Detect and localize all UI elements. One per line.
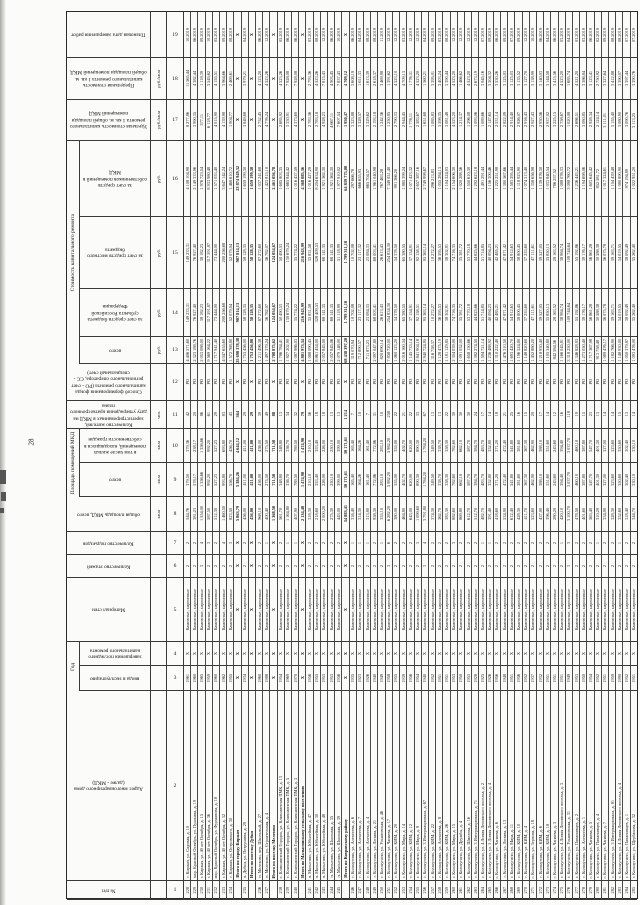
cell-value: 1 037 241,68 [257, 167, 262, 190]
table-cell: X [299, 100, 306, 140]
cell-value: 2 749 998,67 [422, 167, 427, 190]
table-cell: 3 386,84 [580, 58, 587, 99]
cell-value: X [213, 652, 218, 655]
table-cell: 4 523,20 [465, 58, 472, 99]
cell-value: X [343, 652, 348, 655]
table-cell: 1 717 941,40 [213, 337, 220, 363]
cell-value: 577,11 [199, 114, 204, 126]
cell-value: 3 323,88 [350, 112, 355, 127]
cell-value: 993,80 [221, 474, 226, 486]
table-cell: 1 214,37 [458, 100, 465, 140]
table-cell: 2 [443, 555, 450, 577]
cell-value: X [271, 676, 276, 679]
cell-value: Каменные, кирпичные [617, 589, 622, 630]
cell-value: 4 801 973,34 [300, 339, 305, 362]
table-cell: 216 943,99 [299, 289, 306, 336]
table-cell: 87 272,60 [256, 289, 263, 336]
cell-value: 1940 [372, 674, 377, 683]
table-cell: 283,10 [378, 429, 385, 462]
cell-value: 4 523,20 [451, 71, 456, 86]
cell-value: 54 912,63 [509, 304, 514, 321]
cell-value: 2 [480, 565, 485, 567]
table-cell: Каменные, кирпичные [335, 578, 342, 641]
table-cell: 4 [220, 532, 227, 554]
cell-value: 323,60 [610, 440, 615, 452]
cell-value: 254 [408, 887, 413, 893]
table-cell: 2 304 039,00 [451, 337, 458, 363]
table-cell: 275,50 [263, 429, 270, 462]
table-cell: 353,40 [314, 429, 321, 462]
table-cell: 547,70 [587, 463, 594, 496]
table-cell: 3 395,01 [429, 58, 436, 99]
table-cell: 2 944,45 [400, 100, 407, 140]
cell-value: 3 090,76 [624, 112, 629, 127]
cell-value: 327,00 [602, 474, 607, 486]
cell-value: г. Кольчугино, ул. Алексеева, д. 8 [437, 817, 442, 878]
cell-value: 1 368,50 [271, 506, 276, 521]
cell-value: 1 071 423,32 [408, 167, 413, 190]
table-cell: РО [386, 364, 393, 400]
table-cell: 1961 [184, 666, 191, 690]
cell-value: 04.2019 [242, 28, 247, 42]
table-cell: 1934 [242, 666, 249, 690]
cell-value: 1 799 311,10 [343, 241, 348, 263]
table-cell: 58 128,35 [249, 289, 256, 336]
table-cell: 86 [198, 401, 205, 428]
table-cell: Каменные, кирпичные [494, 578, 501, 641]
cell-value: г. Кольчугино, ул. Чапаева, д. 5 [588, 822, 593, 878]
cell-value: 2 [401, 542, 406, 544]
band-group-label: Год [67, 642, 80, 691]
cell-value: РО [566, 379, 571, 385]
table-cell: 297 666,78 [350, 141, 357, 216]
cell-value: 2 304 039,00 [451, 339, 456, 362]
cell-value: г. Кольчугино, ул. Чапаева, д. 6 [494, 822, 499, 878]
cell-value: 662,10 [458, 440, 463, 452]
cell-value: 1951 [631, 674, 636, 683]
table-cell: 118 [566, 401, 573, 428]
table-cell: 1 236 488,92 [487, 337, 494, 363]
cell-value: 39 163,71 [610, 244, 615, 261]
cell-value: 2 [581, 542, 586, 544]
table-cell: 907 814,13 [234, 289, 241, 336]
cell-value: 275,50 [264, 440, 269, 452]
cell-value: 2 [523, 542, 528, 544]
cell-value: РО [444, 379, 449, 385]
band-group-label: Площадь помещений МКД [67, 429, 80, 497]
table-cell: 767 463,28 [378, 141, 385, 216]
cell-value: 4 709,13 [401, 71, 406, 86]
cell-value: РО [437, 379, 442, 385]
table-cell: 218,60 [314, 497, 321, 531]
table-cell: 1 080 890,90 [616, 141, 623, 216]
cell-value: 08.2019 [228, 28, 233, 42]
cell-value: 662,10 [458, 474, 463, 486]
table-cell: 35 262,40 [631, 289, 637, 336]
table-cell: 38 092,49 [623, 217, 630, 288]
cell-value: 2 016 160,34 [401, 339, 406, 362]
table-cell: 3 125,03 [501, 58, 508, 99]
cell-value: X [343, 33, 348, 36]
band-number: 10 [172, 443, 178, 449]
table-cell: 2 686,51 [573, 100, 580, 140]
table-cell: РО [595, 364, 602, 400]
table-cell: 14 [487, 401, 494, 428]
table-cell: 55 192,86 [573, 289, 580, 336]
cell-value: 200 256,68 [221, 243, 226, 262]
cell-value: 25 690 378,38 [235, 338, 240, 363]
cell-value: X [602, 652, 607, 655]
cell-value: 2 000,20 [321, 506, 326, 521]
table-cell: 08.2019 [227, 12, 234, 57]
table-cell: 1 950,47 [342, 100, 349, 140]
table-cell: 1 658 150,66 [465, 337, 472, 363]
table-cell: X [306, 642, 313, 665]
table-cell: Каменные, кирпичные [537, 578, 544, 641]
cell-value: 2 [192, 542, 197, 544]
cell-value: 5 982,20 [386, 438, 391, 453]
table-cell: РО [494, 364, 501, 400]
table-cell: 1 356,66 [198, 463, 205, 496]
band-unit: руб. [156, 346, 161, 354]
table-cell: 04.2019 [357, 12, 364, 57]
cell-value: 310,20 [595, 508, 600, 520]
table-cell: Итого по Малыгинскому сельскому поселени… [299, 691, 306, 880]
table-cell: X [631, 642, 637, 665]
table-cell: 246 [350, 881, 357, 899]
cell-value: 43 [228, 412, 233, 416]
table-cell: 279 [587, 881, 594, 899]
band-col-17: Удельная стоимость капитального ремонта … [67, 100, 637, 141]
table-cell: 109 744,64 [566, 289, 573, 336]
table-cell: с. Клязьминский Городок, ул. Клязьминска… [285, 691, 292, 880]
table-cell: 2 841 904,18 [415, 337, 422, 363]
table-cell: 349,50 [429, 463, 436, 496]
table-cell: 38 800,45 [515, 217, 522, 288]
cell-value: 232 [213, 887, 218, 893]
cell-value: 06.2019 [192, 28, 197, 42]
table-cell: 234 [227, 881, 234, 899]
table-cell: 49 [263, 401, 270, 428]
table-cell: 42 485,21 [494, 289, 501, 336]
table-cell: 06.2019 [191, 12, 198, 57]
cell-value: 364 [235, 411, 240, 417]
cell-value: 367,30 [523, 440, 528, 452]
cell-value: г. Кольчугино, ул. КИМ, д. 10 [516, 824, 521, 878]
cell-value: 30 [458, 412, 463, 416]
cell-value: г. Кольчугино, ул. Мира, д. 9 [415, 826, 420, 878]
table-cell: РО [393, 364, 400, 400]
table-cell: 1958 [386, 666, 393, 690]
cell-value: Каменные, кирпичные [444, 589, 449, 630]
table-cell: 1 460,50 [220, 497, 227, 531]
table-cell: 2 [602, 532, 609, 554]
cell-value: 1923 [357, 674, 362, 683]
band-label: Удельная стоимость капитального ремонта … [68, 110, 149, 129]
cell-value: 1 087 986,03 [293, 339, 298, 362]
cell-value: РО [372, 379, 377, 385]
cell-value: 29 [242, 412, 247, 416]
cell-value: г. Кольчугино, ул. Мира, д. 11 [509, 824, 514, 878]
cell-value: 47 871,42 [502, 244, 507, 261]
cell-value: 612,70 [466, 508, 471, 520]
table-cell: 55 192,86 [573, 217, 580, 288]
cell-value: 3 225,15 [552, 112, 557, 127]
cell-value: 1 182 766,90 [610, 339, 615, 362]
cell-value: 1950 [581, 674, 586, 683]
cell-value: 1939 [401, 674, 406, 683]
table-cell: 7 928,08 [292, 58, 299, 99]
table-cell: 974 194,89 [623, 141, 630, 216]
table-cell: X [278, 642, 285, 665]
table-cell: X [256, 642, 263, 665]
table-cell: Каменные, кирпичные [422, 578, 429, 641]
cell-value: 1 885 399,24 [401, 167, 406, 190]
table-cell: 34 378,50 [393, 217, 400, 288]
group-label-text: Площадь помещений МКД [70, 432, 76, 494]
cell-value: 2 [631, 542, 636, 544]
table-cell: Каменные, кирпичные [602, 578, 609, 641]
cell-value: 12.2019 [458, 28, 463, 42]
table-cell: 352,60 [616, 497, 623, 531]
cell-value: 2 [581, 565, 586, 567]
table-cell: X [184, 642, 191, 665]
cell-value: РО [221, 379, 226, 385]
cell-value: 13 [278, 412, 283, 416]
cell-value: 4 523,26 [264, 71, 269, 86]
cell-value: с. Клязьминский Городок, ул. Клязьминска… [278, 776, 283, 878]
table-cell: 1 651,68 [422, 100, 429, 140]
cell-value: Каменные, кирпичные [602, 589, 607, 630]
table-cell: 384,70 [472, 429, 479, 462]
band-group-label: Стоимость капитального ремонта [67, 141, 80, 364]
table-cell: 2 927,43 [530, 100, 537, 140]
table-cell: 272 [537, 881, 544, 899]
cell-value: 1 022 951,20 [631, 167, 636, 190]
cell-value: 2 [552, 565, 557, 567]
table-cell: 2 016 160,34 [400, 337, 407, 363]
cell-value: РО [293, 379, 298, 385]
table-cell: РО [335, 364, 342, 400]
band-col-2: Адрес многоквартирного дома (далее - МКД… [67, 691, 637, 881]
table-cell: 351,60 [544, 429, 551, 462]
cell-value: 1958 [386, 674, 391, 683]
cell-value: 587,70 [466, 474, 471, 486]
table-cell: 68 438 397,20 [342, 337, 349, 363]
table-cell: 3 [227, 532, 234, 554]
cell-value: 1 603 645,42 [588, 167, 593, 190]
cell-value: г. Кольчугино, ул. Ульяновская, д. 46 [379, 811, 384, 878]
table-cell: 1 961 040,98 [371, 141, 378, 216]
table-cell: Каменные, кирпичные [378, 578, 385, 641]
cell-value: 992,20 [206, 474, 211, 486]
table-cell: 3 125,03 [508, 58, 515, 99]
table-cell: 12.2019 [393, 12, 400, 57]
table-cell: 06.2019 [285, 12, 292, 57]
table-cell: 348,80 [278, 429, 285, 462]
table-cell: 1 118 923,90 [515, 141, 522, 216]
cell-value: X [343, 541, 348, 544]
table-cell: Каменные, кирпичные [314, 578, 321, 641]
cell-value: г. Кольчугино, ул. КИМ, д. 6 [538, 826, 543, 878]
band-col-6: Количество этажей62232222X2X22X222X22222… [67, 555, 637, 578]
cell-value: 254 834,30 [386, 243, 391, 262]
cell-value: 991 366,20 [393, 169, 398, 188]
cell-value: 388,10 [538, 440, 543, 452]
table-cell: 2 793,36 [306, 58, 313, 99]
band-col-9: всегокв.м9379,50578,171 356,66992,20527,… [67, 463, 637, 497]
cell-value: РО [264, 379, 269, 385]
cell-value: 3 390,44 [444, 71, 449, 86]
cell-value: 30 171,61 [343, 471, 348, 488]
cell-value: 68 003,41 [372, 244, 377, 261]
cell-value: 31 [372, 412, 377, 416]
cell-value: 1 685,74 [566, 71, 571, 86]
table-cell: РО [292, 364, 299, 400]
table-cell: РО [458, 364, 465, 400]
cell-value: X [249, 380, 254, 383]
cell-value: 587,70 [466, 440, 471, 452]
table-cell: 3 390,44 [443, 58, 450, 99]
table-cell: 239 [285, 881, 292, 899]
cell-value: 1988 [264, 674, 269, 683]
table-cell: 2 193,18 [371, 100, 378, 140]
table-cell: 1 356,66 [198, 429, 205, 462]
cell-value: 34 883,41 [343, 505, 348, 522]
table-cell: Каменные, кирпичные [595, 578, 602, 641]
cell-value: 8 277,86 [185, 112, 190, 127]
table-cell: 2 [616, 555, 623, 577]
table-cell: 394,40 [559, 463, 566, 496]
cell-value: 50 490,53 [278, 244, 283, 261]
table-cell: 2 [443, 532, 450, 554]
table-cell: 1 554,00 [198, 497, 205, 531]
table-cell: 381,60 [515, 429, 522, 462]
cell-value: 1 089,66 [480, 112, 485, 127]
table-cell: 38 302,91 [443, 289, 450, 336]
cell-value: X [365, 652, 370, 655]
cell-value: 2 927,43 [530, 112, 535, 127]
band-number: 14 [172, 310, 178, 316]
cell-value: 36 075,78 [602, 304, 607, 321]
table-cell: 29 [213, 401, 220, 428]
cell-value: 30 171,61 [343, 437, 348, 454]
group-label-text: Стоимость капитального ремонта [70, 214, 76, 291]
table-cell: 534,90 [501, 497, 508, 531]
cell-value: Каменные, кирпичные [336, 589, 341, 630]
cell-value: РО [430, 379, 435, 385]
cell-value: Каменные, кирпичные [293, 589, 298, 630]
cell-value: 1 921 562,30 [329, 167, 334, 190]
cell-value: 49 [264, 412, 269, 416]
table-cell: 1 611,33 [357, 58, 364, 99]
table-cell: 482,70 [479, 497, 486, 531]
table-cell: 563,40 [587, 497, 594, 531]
table-cell: 2 [191, 555, 198, 577]
table-cell: Каменные, кирпичные [400, 578, 407, 641]
table-cell: 1953 [328, 666, 335, 690]
cell-value: X [235, 608, 240, 611]
table-cell: 1948 [501, 666, 508, 690]
cell-value: 456,00 [249, 508, 254, 520]
table-cell: 1950 [580, 666, 587, 690]
cell-value: РО [379, 379, 384, 385]
cell-value: 2 057 845,06 [329, 339, 334, 362]
table-cell: X [451, 642, 458, 665]
cell-value: X [595, 652, 600, 655]
table-cell: 253 [400, 881, 407, 899]
cell-value: 22 [444, 412, 449, 416]
table-cell: 3 545,62 [206, 58, 213, 99]
cell-value: 228 [185, 887, 190, 893]
table-cell: 262 [465, 881, 472, 899]
cell-value: 38 800,45 [516, 244, 521, 261]
cell-value: РО [466, 379, 471, 385]
cell-value: 2 [509, 542, 514, 544]
cell-value: 266 [494, 887, 499, 893]
cell-value: 2 134,40 [300, 506, 305, 521]
cell-value: 269 [516, 887, 521, 893]
cell-value: 330,10 [631, 474, 636, 486]
table-cell: 437,90 [537, 497, 544, 531]
table-cell: РО [256, 364, 263, 400]
table-cell: 264 [479, 881, 486, 899]
cell-value: 666 655,93 [357, 169, 362, 188]
table-cell: X [234, 58, 241, 99]
cell-value: 2 [257, 542, 262, 544]
table-cell: РО [465, 364, 472, 400]
table-cell: 68 141,35 [321, 217, 328, 288]
cell-value: 527,23 [213, 474, 218, 486]
cell-value: 4 155,51 [213, 71, 218, 86]
cell-value: Каменные, кирпичные [437, 589, 442, 630]
table-cell: 285 [631, 881, 637, 899]
table-cell: г. Кольчугино, ул. Алексеева, д. 7 [357, 691, 364, 880]
cell-value: 68 438 397,20 [343, 338, 348, 363]
cell-value: 443,00 [336, 508, 341, 520]
table-cell: 4 709,12 [342, 58, 349, 99]
cell-value: 400,40 [264, 508, 269, 520]
cell-value: 251 [386, 887, 391, 893]
cell-value: 3 125,03 [509, 71, 514, 86]
table-cell: 47 871,42 [501, 217, 508, 288]
table-cell: 1923 [357, 666, 364, 690]
table-cell: 2 [191, 532, 198, 554]
table-cell: 1 358 656,98 [530, 141, 537, 216]
cell-value: 12.2019 [393, 28, 398, 42]
cell-value: 76 927,40 [192, 304, 197, 321]
cell-value: 73 444,00 [213, 304, 218, 321]
table-cell: 2 [213, 555, 220, 577]
cell-value: Каменные, кирпичные [314, 589, 319, 630]
cell-value: 2 079 148,00 [336, 339, 341, 362]
cell-value: 2 [228, 565, 233, 567]
table-cell: 3 123,41 [587, 58, 594, 99]
cell-value: 03.2019 [574, 28, 579, 42]
table-cell: X [342, 666, 349, 690]
cell-value: 789,50 [293, 440, 298, 452]
cell-value: 402,70 [401, 474, 406, 486]
cell-value: X [257, 652, 262, 655]
cell-value: 42 [185, 412, 190, 416]
cell-value: 14 [545, 412, 550, 416]
cell-value: 2 124,14 [595, 112, 600, 127]
table-cell: 38 984,74 [559, 217, 566, 288]
table-cell: г. Кольчугино, ул. Щербакова, д. 32 [631, 691, 637, 880]
cell-value: 1955 [314, 674, 319, 683]
cell-value: 338,70 [437, 440, 442, 452]
cell-value: 2 [602, 565, 607, 567]
